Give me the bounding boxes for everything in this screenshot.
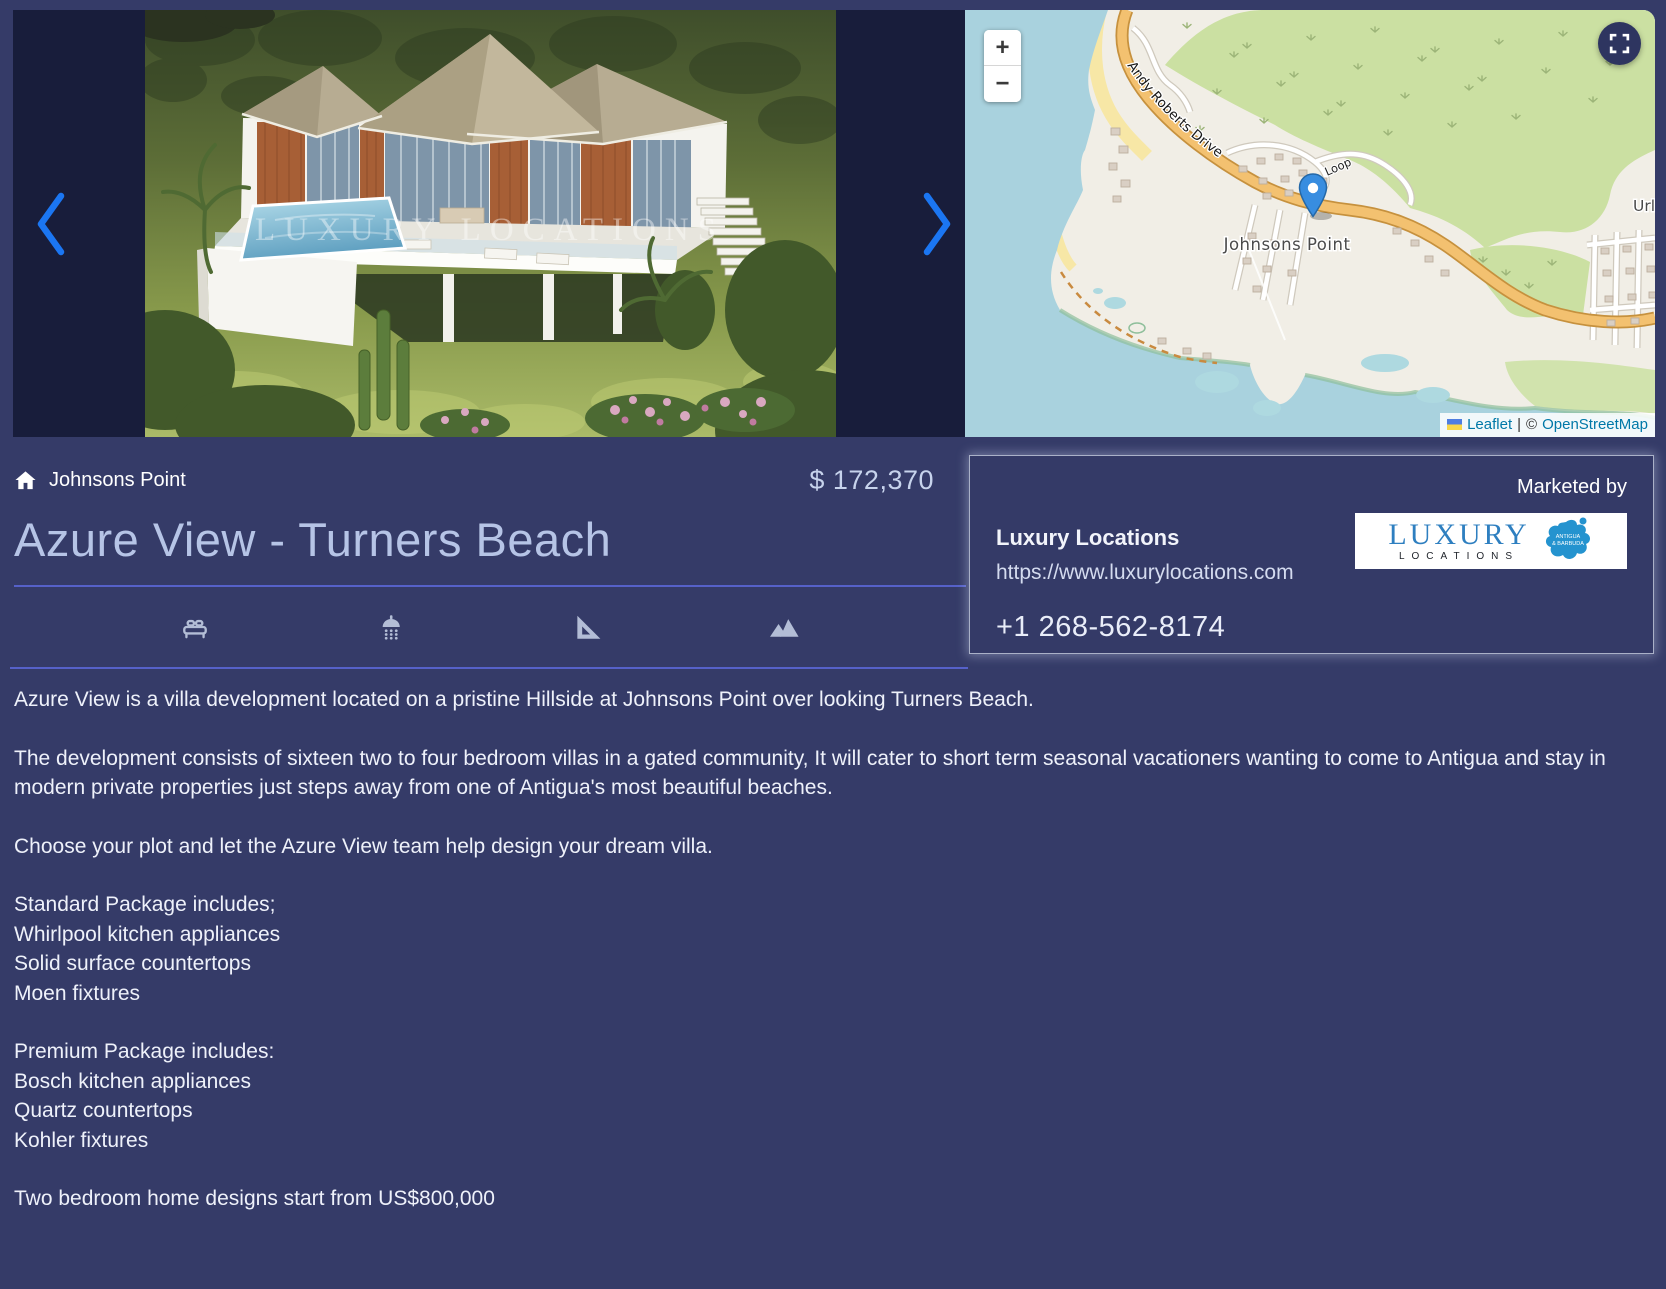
map-attribution: Leaflet | © OpenStreetMap — [1440, 413, 1655, 437]
agency-phone[interactable]: +1 268-562-8174 — [996, 611, 1627, 644]
agent-card: Marketed by Luxury Locations https://www… — [969, 455, 1654, 654]
features-divider — [10, 667, 968, 669]
description-paragraph: Choose your plot and let the Azure View … — [14, 832, 1626, 862]
chevron-left-icon — [33, 191, 69, 257]
antigua-map-icon: ANTIGUA & BARBUDA — [1542, 516, 1594, 566]
breadcrumb[interactable]: Johnsons Point — [14, 469, 186, 492]
shower-icon — [376, 612, 406, 642]
listing-header: Johnsons Point $ 172,370 Azure View - Tu… — [0, 437, 966, 669]
map-fullscreen-button[interactable] — [1598, 22, 1641, 65]
copyright-symbol: © — [1526, 416, 1537, 433]
listing-header-section: Johnsons Point $ 172,370 Azure View - Tu… — [0, 437, 1666, 669]
description-paragraph: The development consists of sixteen two … — [14, 744, 1626, 803]
carousel-next-button[interactable] — [917, 189, 957, 259]
hero-section: LUXURY LOCATIONS — [0, 0, 1666, 437]
description-paragraph: Azure View is a villa development locate… — [14, 685, 1626, 715]
page-title: Azure View - Turners Beach — [14, 512, 966, 567]
agency-info: Luxury Locations https://www.luxurylocat… — [996, 513, 1294, 585]
description-paragraph: Premium Package includes: Bosch kitchen … — [14, 1037, 1626, 1155]
property-description: Azure View is a villa development locate… — [0, 669, 1666, 1273]
bed-icon — [179, 612, 211, 642]
marketed-by-label: Marketed by — [996, 476, 1627, 499]
logo-word-luxury: LUXURY — [1388, 520, 1529, 550]
feature-icon-row — [14, 599, 966, 655]
agency-website-link[interactable]: https://www.luxurylocations.com — [996, 561, 1294, 585]
property-photo: LUXURY LOCATIONS — [145, 10, 836, 437]
agency-name: Luxury Locations — [996, 525, 1294, 551]
description-paragraph: Standard Package includes; Whirlpool kit… — [14, 890, 1626, 1008]
logo-word-locations: LOCATIONS — [1388, 551, 1529, 562]
badge-line1: ANTIGUA — [1555, 534, 1580, 540]
attribution-divider: | — [1517, 416, 1521, 433]
fullscreen-icon — [1607, 31, 1632, 56]
leaflet-link[interactable]: Leaflet — [1467, 416, 1512, 433]
map-zoom-out-button[interactable]: − — [984, 66, 1021, 102]
description-paragraph: Two bedroom home designs start from US$8… — [14, 1184, 1626, 1214]
price: $ 172,370 — [809, 465, 934, 496]
location-map[interactable]: Andy Roberts Drive Loop Johnsons Point U… — [965, 10, 1655, 437]
photo-watermark: LUXURY LOCATIONS — [255, 212, 725, 248]
ukraine-flag-icon — [1447, 419, 1462, 430]
map-tiles: Andy Roberts Drive Loop Johnsons Point U… — [965, 10, 1655, 437]
agent-column: Marketed by Luxury Locations https://www… — [966, 437, 1666, 654]
map-place-label-right: Urlin — [1633, 197, 1655, 215]
openstreetmap-link[interactable]: OpenStreetMap — [1542, 416, 1648, 433]
view-icon — [767, 612, 801, 642]
breadcrumb-label: Johnsons Point — [49, 469, 186, 492]
agency-logo: LUXURY LOCATIONS ANTIGUA & BARBUDA — [1355, 513, 1627, 569]
bedrooms-feature — [179, 612, 211, 642]
badge-line2: & BARBUDA — [1552, 541, 1584, 547]
map-zoom-control: + − — [984, 30, 1021, 102]
carousel-prev-button[interactable] — [31, 189, 71, 259]
area-feature — [572, 612, 602, 642]
photo-carousel: LUXURY LOCATIONS — [13, 10, 965, 437]
area-icon — [572, 612, 602, 642]
title-divider — [14, 585, 966, 587]
home-icon — [14, 469, 37, 492]
map-zoom-in-button[interactable]: + — [984, 30, 1021, 66]
view-feature — [767, 612, 801, 642]
bathrooms-feature — [376, 612, 406, 642]
chevron-right-icon — [919, 191, 955, 257]
map-place-label: Johnsons Point — [1223, 235, 1351, 254]
